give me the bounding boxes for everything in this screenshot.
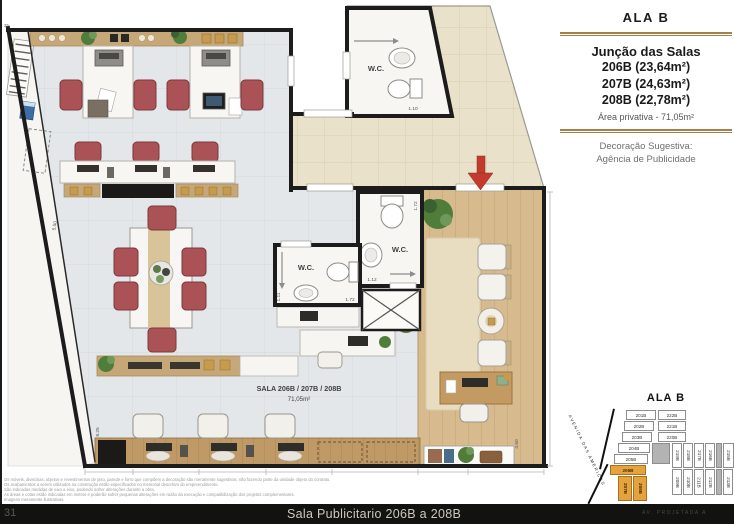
keyplan-cell-220B: 220B (658, 432, 686, 442)
keyplan-cell-215B: 215B (723, 443, 734, 468)
wc-label-left: W.C. (298, 263, 314, 272)
dim-counter: 8.25 (95, 427, 101, 437)
keyplan-cell-218B: 218B (683, 443, 693, 468)
keyplan-cell-222B: 222B (658, 410, 686, 420)
gold-rule (560, 32, 732, 36)
deck-shelf (424, 446, 514, 466)
fine-print-line: Imagens meramente ilustrativas. (4, 497, 566, 502)
page-number: 31 (4, 507, 16, 519)
keyplan-cell-213B: 213B (723, 469, 733, 495)
keyplan-cell-204B: 204B (618, 443, 650, 453)
keyplan-core-cell (716, 443, 722, 468)
wing-title: ALA B (558, 8, 734, 25)
wc-label-right: W.C. (392, 245, 408, 254)
keyplan-cell-219B: 219B (672, 443, 682, 468)
street-label-projetada: AV. PROJETADA A (642, 510, 707, 516)
footer-bar: 31 Sala Publicitario 206B a 208B AV. PRO… (0, 504, 734, 524)
keyplan-cell-203B: 203B (622, 432, 652, 442)
keyplan-cell-210B: 210B (683, 469, 693, 495)
unit-line: 207B (24,63m²) (558, 76, 734, 93)
sideboard (97, 356, 298, 376)
keyplan-cell-206B-highlighted: 206B (610, 465, 646, 475)
shaft-hatched (362, 290, 420, 330)
wc-left-room (275, 241, 360, 305)
brochure-page: W.C. W.C. W.C. SALA 206B / 207B / 208B 7… (0, 0, 734, 524)
wc-label-top: W.C. (368, 64, 384, 73)
dim-wc-right-w: 1.12 (367, 277, 377, 283)
unit-line: 208B (22,78m²) (558, 92, 734, 109)
counter-row-workstations (60, 142, 238, 198)
dim-wc-left-w: 1.72 (345, 297, 355, 303)
dim-wc-right-h: 1.72 (413, 201, 419, 211)
info-sidebar: ALA B Junção das Salas 206B (23,64m²) 20… (558, 8, 734, 166)
gold-rule (560, 129, 732, 133)
keyplan-cell-217B: 217B (694, 443, 704, 468)
keyplan-cell-205B: 205B (614, 454, 648, 464)
keyplan-core-cell (652, 443, 670, 464)
keyplan-cell-207B-highlighted: 207B (618, 476, 632, 501)
dim-wc-top: 1.10 (408, 106, 418, 112)
floor-plan: W.C. W.C. W.C. SALA 206B / 207B / 208B 7… (0, 0, 560, 478)
sidebar-heading: Junção das Salas (558, 44, 734, 59)
footer-title: Sala Publicitario 206B a 208B (287, 507, 461, 521)
keyplan-cell-208B-highlighted: 208B (633, 476, 647, 501)
unit-line: 206B (23,64m²) (558, 59, 734, 76)
decor-note-line1: Decoração Sugestiva: (558, 140, 734, 153)
dim-deck: 4.50 (514, 439, 520, 449)
decor-note-line2: Agência de Publicidade (558, 153, 734, 166)
keyplan-title: ALA B (596, 392, 734, 404)
street-boundary-line (599, 409, 615, 470)
keyplan-cell-211B: 211B (694, 469, 704, 495)
keyplan-map: 201B 202B 203B 204B 205B 206B 207B 208B … (600, 410, 734, 502)
dim-wc-left-h: 1.11 (276, 292, 282, 301)
keyplan-core-cell (716, 469, 722, 495)
private-area-label: Área privativa - 71,05m² (558, 112, 734, 122)
room-area-label: 71,05m² (288, 396, 311, 403)
keyplan-cell-216B: 216B (705, 443, 715, 468)
legal-fine-print: Os móveis, divisórias, objetos e revesti… (4, 477, 566, 502)
dim-corner: 25 (4, 23, 9, 28)
room-label: SALA 206B / 207B / 208B (257, 384, 342, 393)
keyplan-cell-201B: 201B (626, 410, 656, 420)
top-credenza (30, 30, 243, 46)
keyplan-cell-209B: 209B (672, 469, 682, 495)
keyplan-cell-221B: 221B (658, 421, 686, 431)
keyplan-cell-202B: 202B (624, 421, 654, 431)
keyplan-cell-212B: 212B (705, 469, 715, 495)
wc-right-room (358, 192, 422, 289)
